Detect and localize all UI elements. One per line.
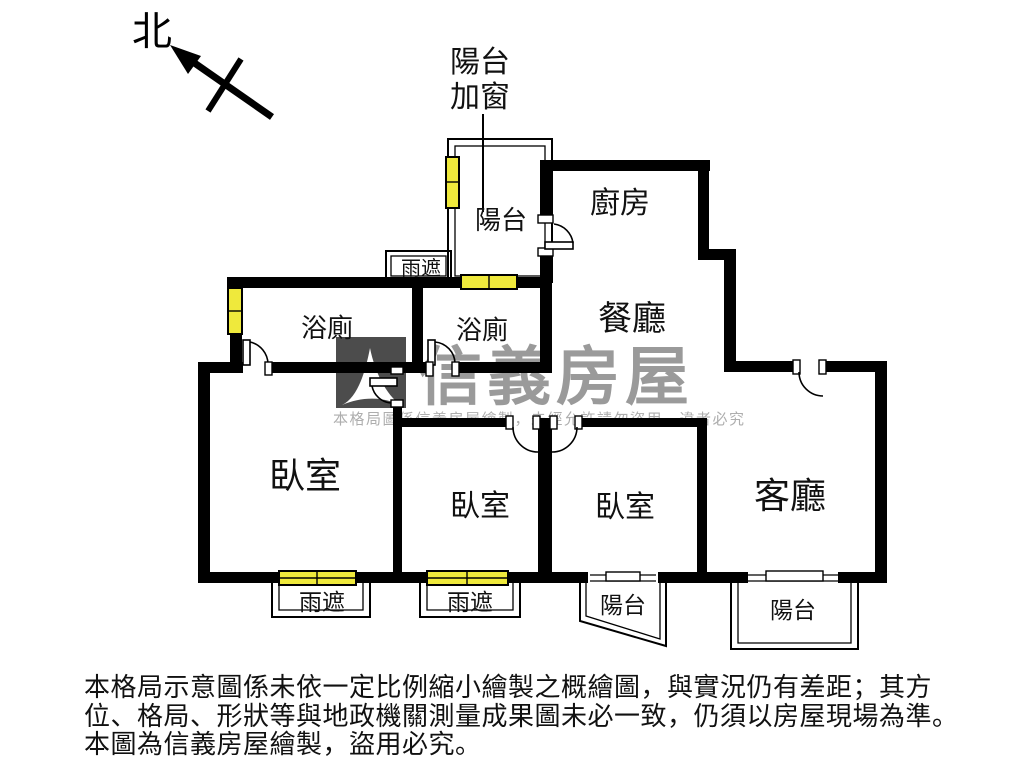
kitchen-door-jamb-top	[538, 215, 553, 223]
disclaimer-block: 本格局示意圖係未依一定比例縮小繪製之概繪圖，與實況仍有差距；其方 位、格局、形狀…	[84, 674, 1004, 760]
label-living: 客廳	[754, 476, 826, 516]
north-arrow-head-icon	[170, 45, 201, 74]
label-kitchen: 廚房	[590, 187, 650, 220]
label-bedroom-middle: 臥室	[450, 490, 510, 523]
label-canopy-bottom-right: 雨遮	[447, 590, 493, 615]
label-balcony-top: 陽台	[475, 206, 527, 235]
wall-hall-right-seg	[456, 362, 552, 373]
bed1-door-jamb-top	[391, 367, 403, 374]
kitchen-door-arc	[554, 224, 573, 243]
wall-kitchen-top	[540, 160, 710, 171]
label-dining: 餐廳	[598, 300, 666, 338]
annotation-balcony-window-line2: 加窗	[450, 81, 510, 114]
wall-left-exterior	[198, 362, 210, 583]
bed3-door-jamb-right	[575, 416, 582, 429]
label-bath-right: 浴廁	[456, 316, 508, 345]
wall-bed1-bed2-divider	[393, 406, 402, 583]
bath1-door-jamb	[265, 362, 272, 375]
annotation-balcony-window-line1: 陽台	[450, 46, 510, 79]
floor-plan-canvas: 信義房屋 本格局圖係信義房屋繪製，未經允許請勿盜用，違者必究 北	[0, 0, 1024, 768]
wall-bed3-living-divider	[697, 418, 707, 583]
bath2-door-leaf	[428, 340, 435, 365]
living-glass-panel	[766, 571, 823, 581]
label-canopy-bottom-left: 雨遮	[299, 590, 345, 615]
label-balcony-bottom-right: 陽台	[770, 598, 816, 623]
watermark-brand-text: 信義房屋	[418, 342, 694, 413]
disclaimer-line-3: 本圖為信義房屋繪製，盜用必究。	[84, 731, 1004, 760]
entry-door-arc	[799, 372, 823, 396]
wall-bath-divider	[412, 277, 423, 368]
bed3-door-arc	[552, 427, 577, 452]
wall-bed-top-a	[393, 418, 513, 427]
wall-kitchen-right	[698, 160, 709, 255]
bed2-door-jamb-right	[533, 416, 540, 429]
bath2-door-jamb-left	[426, 362, 433, 376]
north-arrow: 北	[132, 9, 272, 117]
wall-living-top-a	[724, 361, 797, 372]
wall-hall-mid-seg	[268, 362, 428, 373]
north-label: 北	[132, 9, 172, 54]
wall-bed2-bed3-divider	[538, 418, 552, 583]
bath1-door-leaf	[243, 340, 250, 365]
label-balcony-bottom-left: 陽台	[600, 593, 646, 618]
entry-door-jamb-left	[793, 360, 800, 374]
wall-kitchen-left-lower	[540, 250, 552, 368]
bed2-door-arc	[513, 427, 538, 452]
bath1-door-arc	[250, 342, 268, 364]
wall-dining-right	[724, 249, 736, 367]
floor-plan-page: 信義房屋 本格局圖係信義房屋繪製，未經允許請勿盜用，違者必究 北	[0, 0, 1024, 768]
bedroom3-glass-panel	[606, 572, 640, 581]
label-canopy-top: 雨遮	[401, 257, 441, 280]
north-arrow-crossbar	[208, 59, 241, 111]
bed2-door-jamb-left	[506, 416, 513, 429]
kitchen-door-leaf	[545, 242, 573, 249]
bath2-door-jamb-right	[452, 362, 459, 376]
label-bath-left: 浴廁	[301, 314, 353, 343]
label-bedroom-left: 臥室	[269, 456, 341, 496]
bed1-door-leaf	[370, 378, 397, 386]
wall-right-exterior	[875, 361, 887, 583]
entry-door-jamb-right	[819, 360, 826, 374]
disclaimer-line-2: 位、格局、形狀等與地政機關測量成果圖未必一致，仍須以房屋現場為準。	[84, 703, 1004, 732]
bed3-door-jamb-left	[550, 416, 557, 429]
north-arrow-shaft	[183, 55, 272, 117]
bed1-door-jamb-bottom	[391, 400, 403, 407]
label-bedroom-right: 臥室	[595, 491, 655, 524]
wall-bed-top-b	[577, 418, 707, 427]
disclaimer-line-1: 本格局示意圖係未依一定比例縮小繪製之概繪圖，與實況仍有差距；其方	[84, 674, 1004, 703]
